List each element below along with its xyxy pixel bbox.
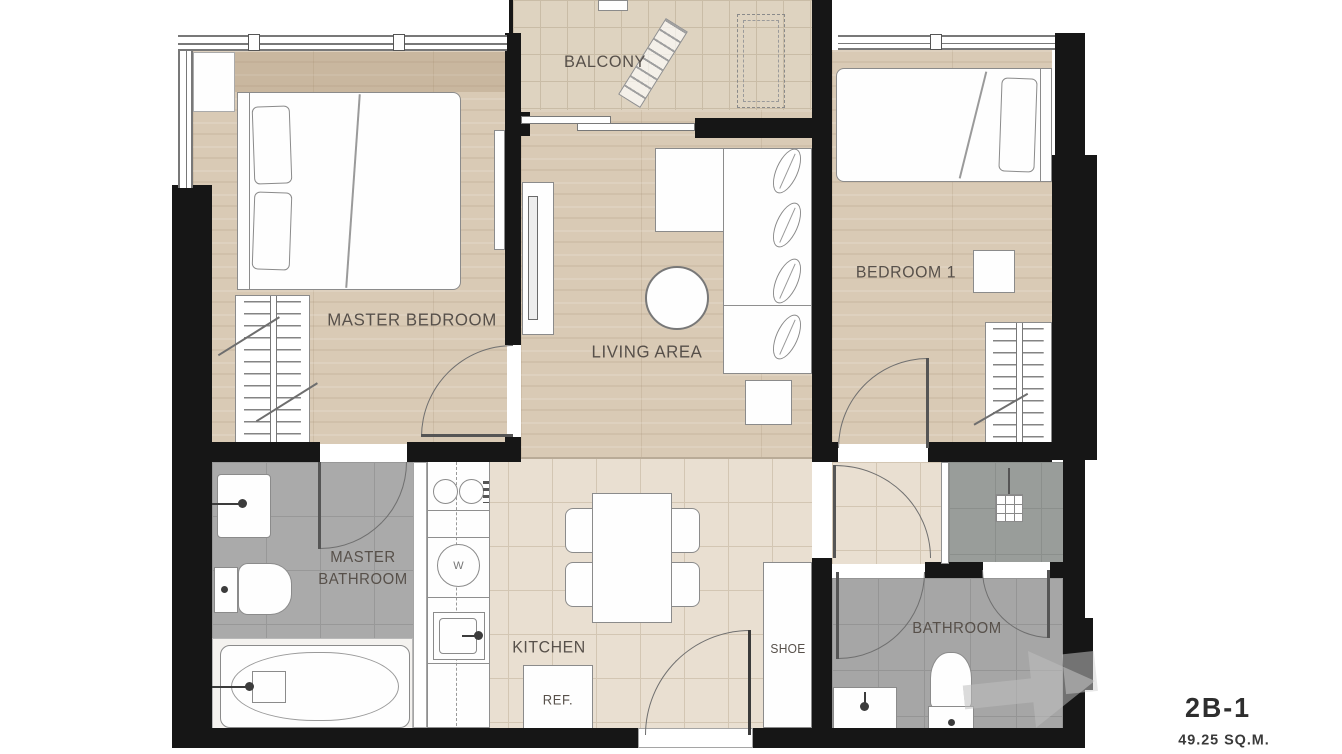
master-bathroom-door-leaf [318,462,321,549]
counter-divider [428,510,489,511]
bedroom1-wardrobe [985,322,1052,450]
stove-grill [483,481,489,503]
bathroom-label: BATHROOM [912,620,1001,638]
bay-ledge [193,52,235,112]
unit-name: 2B-1 [1185,692,1251,724]
master-bedroom-window-top [178,35,507,51]
master-bedroom-label: MASTER BEDROOM [327,310,497,331]
bedroom1-window-top [838,35,1055,50]
ac-unit-inner [743,20,779,102]
ac-unit-outline [737,14,785,108]
shower-head [995,494,1023,522]
wall-shower-partition [941,462,949,564]
bedroom1-nightstand [973,250,1015,293]
master-bedroom-window-left [178,51,193,188]
wall-mbath-kitchen [413,462,427,728]
wall-bathroom-top-post [925,562,983,578]
wall-mid-d [928,442,1052,462]
bedroom1-door-leaf [926,358,929,448]
watermark-block [1062,651,1098,694]
wall-mid-b [407,442,521,462]
wall-balcony-bottom [695,118,812,138]
shower-pipe [1008,468,1010,494]
sofa-seat-line [724,305,811,306]
counter-divider [428,537,489,538]
toilet-flush [948,719,955,726]
wardrobe-rail [1016,323,1023,449]
kitchen-label: KITCHEN [512,639,586,658]
balcony-label: BALCONY [564,52,646,72]
balcony-shaft [598,0,628,11]
tv-screen [528,196,538,320]
wall-mid-a [212,442,320,462]
unit-area: 49.25 SQ.M. [1178,732,1269,749]
wall-bedroom1-right-upper [1055,33,1085,155]
wall-east-of-kitchen [812,558,832,748]
master-bathroom-label-line2: BATHROOM [318,571,407,589]
sliding-door-panel [577,123,695,131]
wall-bathroom-top-end [1050,562,1063,578]
bathroom-door-leaf [836,572,839,659]
stove-burner [433,479,458,504]
dining-table [592,493,672,623]
master-bathroom-label-line1: MASTER [330,549,395,567]
washing-machine: W [437,544,480,587]
window-mid-line [178,43,507,45]
wall-mb-living [505,33,521,345]
floor-transition-line [521,457,812,459]
window-mullion [248,34,260,51]
master-bed-pillow-1 [252,105,293,184]
bathtub-supply-valve [245,682,254,691]
master-wardrobe [235,295,310,447]
refrigerator-label: REF. [543,693,573,708]
window-mullion [930,34,942,50]
window-mullion [393,34,405,51]
foyer-door-leaf [833,465,836,558]
sink-faucet-stub [462,635,476,637]
stove-burner [459,479,484,504]
floor-plan: W REF. SHOE [0,0,1342,754]
watermark-logo [959,633,1100,738]
master-tv-panel [494,130,505,250]
counter-divider [428,597,489,598]
bedroom1-label: BEDROOM 1 [856,264,956,283]
window-mid-line [186,51,188,188]
wardrobe-hanger-line [256,382,318,421]
master-bed-headboard [237,92,250,290]
window-mid-line [838,43,1055,45]
master-bedroom-floor-shadow [235,52,507,92]
living-area-label: LIVING AREA [592,342,703,363]
master-bath-basin-faucet [238,499,247,508]
entrance-door-leaf [748,630,751,735]
counter-dashed-edge [456,462,457,726]
counter-divider [428,663,489,664]
shoe-cabinet-label: SHOE [770,642,805,656]
bathroom-basin-faucet-line [864,692,866,704]
master-toilet-bowl [238,563,292,615]
wall-bedroom1-right-lower [1052,155,1097,460]
master-bed-pillow-2 [252,191,293,270]
bathtub-faucet-box [252,671,286,703]
bedroom1-headboard [1040,68,1052,182]
wall-bottom-left [172,728,638,748]
washing-machine-label: W [453,560,463,572]
tv-console [522,182,554,335]
wall-balcony-left-line [509,0,513,118]
shower-door-leaf [1047,570,1050,638]
wall-east-of-living [812,0,832,462]
coffee-table [645,266,709,330]
wall-left-shear [172,185,212,748]
bedroom1-pillow [998,77,1037,172]
wall-mid-c [812,442,838,462]
master-bedroom-door-leaf [421,434,513,437]
master-toilet-flush [221,586,228,593]
sofa-side-table [745,380,792,425]
